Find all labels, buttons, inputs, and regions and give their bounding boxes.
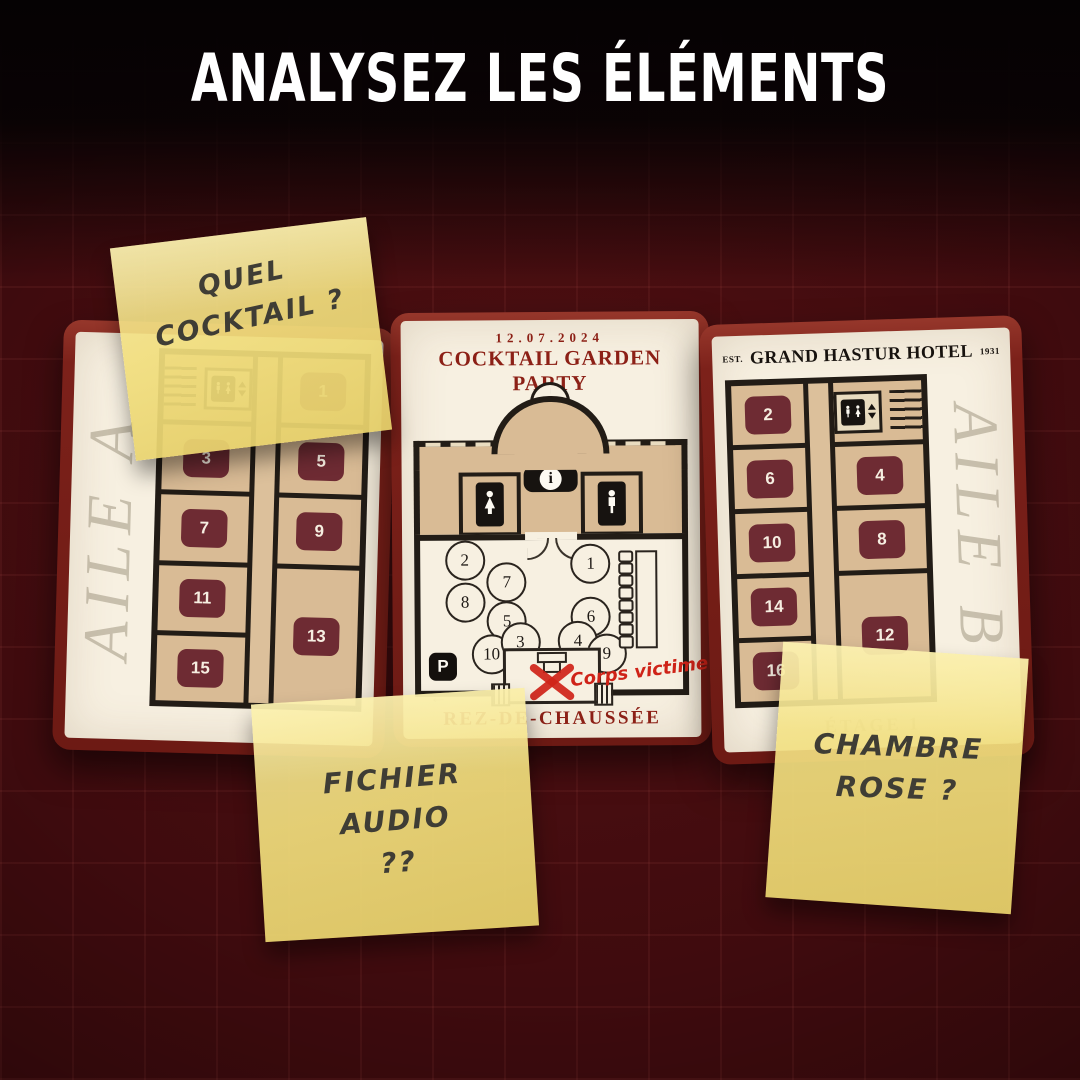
ground-floor-paper: 12.07.2024 COCKTAIL GARDEN PARTY i — [401, 319, 702, 739]
man-icon — [597, 481, 625, 525]
table-7: 7 — [487, 562, 527, 602]
room-cell-6: 6 — [733, 448, 807, 509]
room-cell-7: 7 — [159, 495, 249, 563]
sticky-note-text: CHAMBRE ROSE ? — [773, 722, 1022, 815]
table-8: 8 — [445, 582, 485, 622]
wing-b-utility-room — [833, 380, 923, 442]
room-badge-9: 9 — [296, 512, 343, 551]
woman-icon — [476, 482, 504, 526]
room-cell-11: 11 — [157, 565, 247, 633]
elevator-people-icon — [840, 399, 865, 426]
room-badge-10: 10 — [748, 523, 795, 562]
room-cell-4: 4 — [835, 444, 925, 506]
rotunda-entrance — [491, 396, 609, 455]
table-1: 1 — [570, 544, 610, 584]
room-cell-2: 2 — [731, 384, 805, 445]
room-badge-4: 4 — [856, 456, 903, 495]
room-cell-15: 15 — [155, 635, 245, 703]
sticky-note-text: QUEL COCKTAIL ? — [111, 232, 380, 365]
hotel-header: EST. GRAND HASTUR HOTEL 1931 — [712, 339, 1011, 369]
hotel-est-label: EST. — [722, 353, 743, 364]
room-badge-8: 8 — [858, 520, 905, 559]
room-badge-14: 14 — [750, 587, 797, 626]
parking-icon: P — [429, 653, 457, 681]
room-badge-2: 2 — [744, 395, 791, 434]
party-hall: 2 7 1 8 5 6 10 3 4 9 — [414, 533, 689, 697]
ground-floor-plan: i 2 7 1 8 — [413, 381, 689, 689]
lobby-area: i — [414, 463, 688, 535]
wing-b-watermark: AILE B — [938, 402, 1020, 654]
bar-stools — [618, 550, 634, 648]
room-badge-13: 13 — [293, 617, 340, 656]
info-symbol: i — [540, 468, 562, 490]
hotel-name: GRAND HASTUR HOTEL — [750, 341, 974, 369]
hotel-year: 1931 — [980, 345, 1000, 356]
table-2: 2 — [445, 540, 485, 580]
page-title: ANALYSEZ LES ÉLÉMENTS — [151, 40, 929, 117]
room-badge-11: 11 — [179, 579, 226, 618]
door-swing-arc-icon — [527, 538, 549, 560]
poster-background: { "title": "ANALYSEZ LES ÉLÉMENTS", "win… — [0, 0, 1080, 1080]
clipboard-ground-floor: 12.07.2024 COCKTAIL GARDEN PARTY i — [390, 311, 711, 747]
sticky-note-audio: FICHIER AUDIO ?? — [251, 688, 539, 942]
restroom-men — [580, 471, 642, 535]
room-cell-10: 10 — [735, 512, 809, 573]
room-badge-7: 7 — [181, 509, 228, 548]
sticky-note-chambre-rose: CHAMBRE ROSE ? — [765, 642, 1028, 915]
bar-counter — [635, 550, 658, 648]
room-badge-5: 5 — [298, 442, 345, 481]
lectern-icon — [537, 652, 567, 663]
room-cell-8: 8 — [837, 509, 927, 571]
elevator-arrows-icon — [867, 404, 875, 419]
stairs-icon — [889, 389, 922, 432]
room-cell-9: 9 — [277, 498, 361, 565]
restroom-women — [459, 472, 521, 536]
room-badge-15: 15 — [177, 649, 224, 688]
room-badge-6: 6 — [746, 459, 793, 498]
room-cell-13: 13 — [273, 568, 359, 706]
elevator-icon — [833, 390, 882, 433]
sticky-note-text: FICHIER AUDIO ?? — [254, 747, 537, 894]
room-cell-14: 14 — [737, 576, 811, 637]
sticky-note-cocktail: QUEL COCKTAIL ? — [110, 217, 392, 461]
